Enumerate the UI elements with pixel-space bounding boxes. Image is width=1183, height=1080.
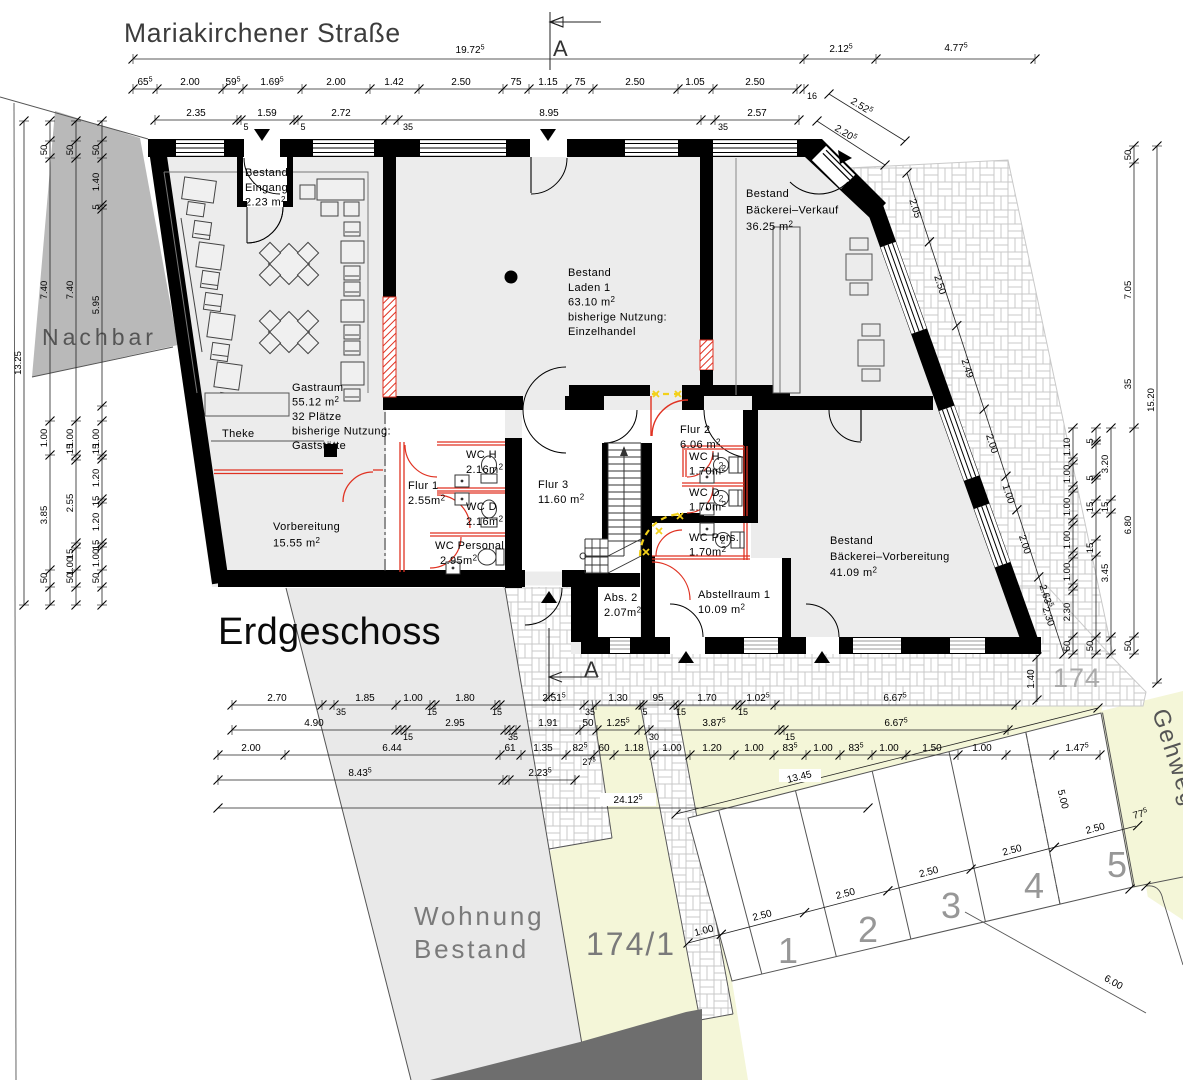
svg-text:36.25 m2: 36.25 m2 (746, 220, 794, 234)
svg-text:1.00: 1.00 (403, 693, 423, 704)
svg-text:Bestand: Bestand (568, 267, 611, 279)
svg-text:5: 5 (1107, 844, 1127, 885)
svg-text:2.23 m2: 2.23 m2 (245, 195, 286, 209)
svg-text:2.95m2: 2.95m2 (440, 554, 478, 568)
svg-text:1.00: 1.00 (813, 743, 833, 754)
svg-text:95: 95 (652, 693, 664, 704)
svg-text:2.72: 2.72 (331, 108, 351, 119)
svg-text:Abs. 2: Abs. 2 (604, 592, 638, 604)
svg-text:1.40: 1.40 (91, 173, 102, 192)
svg-text:15.20: 15.20 (1146, 388, 1157, 412)
svg-text:174: 174 (1053, 663, 1101, 693)
svg-text:15: 15 (785, 732, 795, 742)
svg-text:15: 15 (91, 496, 102, 507)
svg-text:50: 50 (582, 718, 594, 729)
svg-text:2.50: 2.50 (451, 77, 471, 88)
svg-text:15: 15 (738, 707, 748, 717)
svg-text:15: 15 (1100, 502, 1111, 513)
svg-text:15: 15 (1085, 502, 1096, 513)
svg-text:1: 1 (778, 930, 798, 971)
svg-text:WC D: WC D (689, 487, 720, 499)
svg-text:4.775: 4.775 (944, 43, 967, 55)
svg-text:Flur 1: Flur 1 (408, 480, 439, 492)
svg-text:1.00: 1.00 (65, 557, 76, 576)
svg-text:2.00: 2.00 (326, 77, 346, 88)
svg-text:15.55 m2: 15.55 m2 (273, 536, 321, 550)
svg-text:Bestand: Bestand (746, 188, 789, 200)
svg-text:3.85: 3.85 (39, 506, 50, 525)
svg-text:Gastraum: Gastraum (292, 382, 344, 394)
svg-text:41.09 m2: 41.09 m2 (830, 566, 878, 580)
svg-text:1.00: 1.00 (1062, 563, 1073, 582)
svg-text:50: 50 (65, 145, 76, 156)
svg-text:1.05: 1.05 (685, 77, 705, 88)
svg-text:2: 2 (858, 909, 878, 950)
svg-text:8.95: 8.95 (539, 108, 559, 119)
svg-text:2.205: 2.205 (832, 123, 858, 145)
svg-text:1.00: 1.00 (39, 429, 50, 448)
svg-text:50: 50 (39, 573, 50, 584)
svg-text:1.00: 1.00 (662, 743, 682, 754)
svg-text:WC D: WC D (466, 501, 497, 513)
svg-text:6.44: 6.44 (382, 743, 402, 754)
svg-text:7.05: 7.05 (1123, 281, 1134, 300)
svg-text:7.40: 7.40 (39, 281, 50, 300)
svg-text:1.10: 1.10 (1062, 438, 1073, 457)
svg-text:WC Pers.: WC Pers. (689, 532, 739, 544)
svg-text:1.00: 1.00 (1062, 531, 1073, 550)
svg-text:2.55m2: 2.55m2 (408, 494, 446, 508)
svg-text:50: 50 (91, 573, 102, 584)
svg-text:Mariakirchener Straße: Mariakirchener Straße (124, 18, 401, 48)
svg-text:32 Plätze: 32 Plätze (292, 411, 341, 423)
svg-text:595: 595 (225, 77, 240, 89)
svg-text:1.00: 1.00 (1062, 465, 1073, 484)
svg-text:2.95: 2.95 (445, 718, 465, 729)
svg-text:Erdgeschoss: Erdgeschoss (218, 611, 441, 653)
svg-text:Bestand: Bestand (830, 535, 873, 547)
svg-text:60: 60 (598, 743, 610, 754)
svg-text:4.90: 4.90 (304, 718, 324, 729)
svg-text:Vorbereitung: Vorbereitung (273, 521, 340, 533)
svg-text:5: 5 (1085, 475, 1096, 480)
svg-text:5.95: 5.95 (91, 296, 102, 315)
svg-text:50: 50 (1062, 641, 1073, 652)
svg-text:2.00: 2.00 (180, 77, 200, 88)
svg-text:10.09 m2: 10.09 m2 (698, 603, 746, 617)
svg-text:WC H: WC H (466, 449, 497, 461)
svg-text:Gaststätte: Gaststätte (292, 440, 346, 452)
svg-text:655: 655 (137, 77, 152, 89)
svg-text:Nachbar: Nachbar (42, 324, 157, 350)
svg-text:A: A (553, 36, 568, 61)
svg-text:5: 5 (243, 122, 248, 132)
svg-text:2.57: 2.57 (747, 108, 767, 119)
svg-text:1.80: 1.80 (455, 693, 475, 704)
svg-text:1.00: 1.00 (879, 743, 899, 754)
svg-text:bisherige Nutzung:: bisherige Nutzung: (568, 311, 667, 323)
svg-text:1.00: 1.00 (1062, 498, 1073, 517)
svg-text:2.16m2: 2.16m2 (466, 463, 504, 477)
svg-text:Eingang: Eingang (245, 182, 288, 194)
svg-text:Bäckerei–Verkauf: Bäckerei–Verkauf (746, 205, 839, 217)
svg-text:50: 50 (1085, 641, 1096, 652)
svg-text:2.07m2: 2.07m2 (604, 606, 642, 620)
svg-text:5: 5 (300, 122, 305, 132)
svg-text:2.55: 2.55 (65, 494, 76, 513)
svg-text:1.70m2: 1.70m2 (689, 464, 727, 478)
svg-text:7.40: 7.40 (65, 281, 76, 300)
svg-text:15: 15 (65, 444, 76, 455)
svg-text:15: 15 (403, 732, 413, 742)
svg-text:55.12 m2: 55.12 m2 (292, 395, 340, 409)
svg-text:35: 35 (403, 122, 413, 132)
svg-text:50: 50 (39, 145, 50, 156)
svg-text:bisherige Nutzung:: bisherige Nutzung: (292, 426, 391, 438)
svg-text:4: 4 (1024, 865, 1044, 906)
svg-text:15: 15 (427, 707, 437, 717)
svg-text:11.60 m2: 11.60 m2 (538, 493, 585, 507)
svg-text:35: 35 (718, 122, 728, 132)
svg-text:Flur 3: Flur 3 (538, 479, 569, 491)
svg-text:35: 35 (508, 732, 518, 742)
svg-text:Bestand: Bestand (245, 167, 288, 179)
svg-text:2.16m2: 2.16m2 (466, 515, 504, 529)
svg-text:50: 50 (1123, 641, 1134, 652)
svg-text:3.20: 3.20 (1100, 455, 1111, 474)
svg-text:174/1: 174/1 (586, 926, 676, 962)
svg-text:30: 30 (649, 732, 659, 742)
svg-text:WC H: WC H (689, 451, 720, 463)
svg-text:63.10 m2: 63.10 m2 (568, 295, 616, 309)
svg-text:1.91: 1.91 (538, 718, 558, 729)
svg-text:1.20: 1.20 (91, 513, 102, 532)
svg-text:1.00: 1.00 (91, 549, 102, 568)
svg-text:16: 16 (807, 91, 817, 101)
svg-text:1.15: 1.15 (538, 77, 558, 88)
svg-text:Laden 1: Laden 1 (568, 282, 611, 294)
svg-text:1.70m2: 1.70m2 (689, 545, 727, 559)
svg-text:Flur 2: Flur 2 (680, 424, 711, 436)
svg-text:35: 35 (1123, 379, 1134, 390)
svg-text:Bestand: Bestand (414, 934, 529, 964)
svg-text:Einzelhandel: Einzelhandel (568, 326, 636, 338)
svg-text:1.00: 1.00 (972, 743, 992, 754)
svg-text:1.30: 1.30 (608, 693, 628, 704)
svg-text:2.30: 2.30 (1062, 603, 1073, 622)
svg-text:2.50: 2.50 (625, 77, 645, 88)
svg-text:50: 50 (65, 573, 76, 584)
svg-text:61: 61 (504, 743, 516, 754)
svg-text:15: 15 (91, 444, 102, 455)
svg-text:2.70: 2.70 (267, 693, 287, 704)
svg-text:2.00: 2.00 (241, 743, 261, 754)
svg-text:1.18: 1.18 (624, 743, 644, 754)
svg-text:1.00: 1.00 (744, 743, 764, 754)
svg-text:5: 5 (91, 204, 102, 209)
svg-text:Theke: Theke (222, 428, 255, 440)
svg-text:6.80: 6.80 (1123, 516, 1134, 535)
svg-text:35: 35 (585, 707, 595, 717)
svg-text:1.50: 1.50 (922, 743, 942, 754)
svg-text:Bäckerei–Vorbereitung: Bäckerei–Vorbereitung (830, 551, 950, 563)
svg-text:2.50: 2.50 (745, 77, 765, 88)
svg-text:75: 75 (510, 77, 522, 88)
svg-text:15: 15 (91, 540, 102, 551)
svg-text:15: 15 (1085, 543, 1096, 554)
svg-text:75: 75 (574, 77, 586, 88)
svg-text:15: 15 (492, 707, 502, 717)
svg-text:2.35: 2.35 (186, 108, 206, 119)
svg-text:5: 5 (642, 707, 647, 717)
svg-text:1.40: 1.40 (1026, 669, 1037, 689)
svg-text:50: 50 (91, 145, 102, 156)
svg-text:A: A (584, 657, 599, 682)
svg-text:1.70m2: 1.70m2 (689, 500, 727, 514)
svg-text:1.42: 1.42 (384, 77, 404, 88)
svg-text:1.35: 1.35 (533, 743, 553, 754)
svg-text:24.125: 24.125 (614, 795, 643, 807)
svg-text:2.125: 2.125 (829, 44, 852, 56)
svg-text:1.20: 1.20 (702, 743, 722, 754)
svg-text:3.45: 3.45 (1100, 564, 1111, 583)
svg-text:Wohnung: Wohnung (414, 901, 544, 931)
svg-text:1.20: 1.20 (91, 469, 102, 488)
svg-text:13.25: 13.25 (13, 351, 24, 375)
svg-text:1.85: 1.85 (355, 693, 375, 704)
svg-text:50: 50 (1123, 150, 1134, 161)
svg-text:1.59: 1.59 (257, 108, 277, 119)
svg-text:3: 3 (941, 885, 961, 926)
svg-text:5: 5 (1085, 438, 1096, 443)
svg-text:1.695: 1.695 (260, 77, 283, 89)
svg-text:35: 35 (336, 707, 346, 717)
svg-text:19.725: 19.725 (456, 45, 485, 57)
svg-text:WC Personal: WC Personal (435, 540, 504, 552)
svg-text:Abstellraum 1: Abstellraum 1 (698, 589, 770, 601)
svg-text:6.06 m2: 6.06 m2 (680, 438, 721, 452)
svg-text:15: 15 (676, 707, 686, 717)
svg-text:1.70: 1.70 (697, 693, 717, 704)
